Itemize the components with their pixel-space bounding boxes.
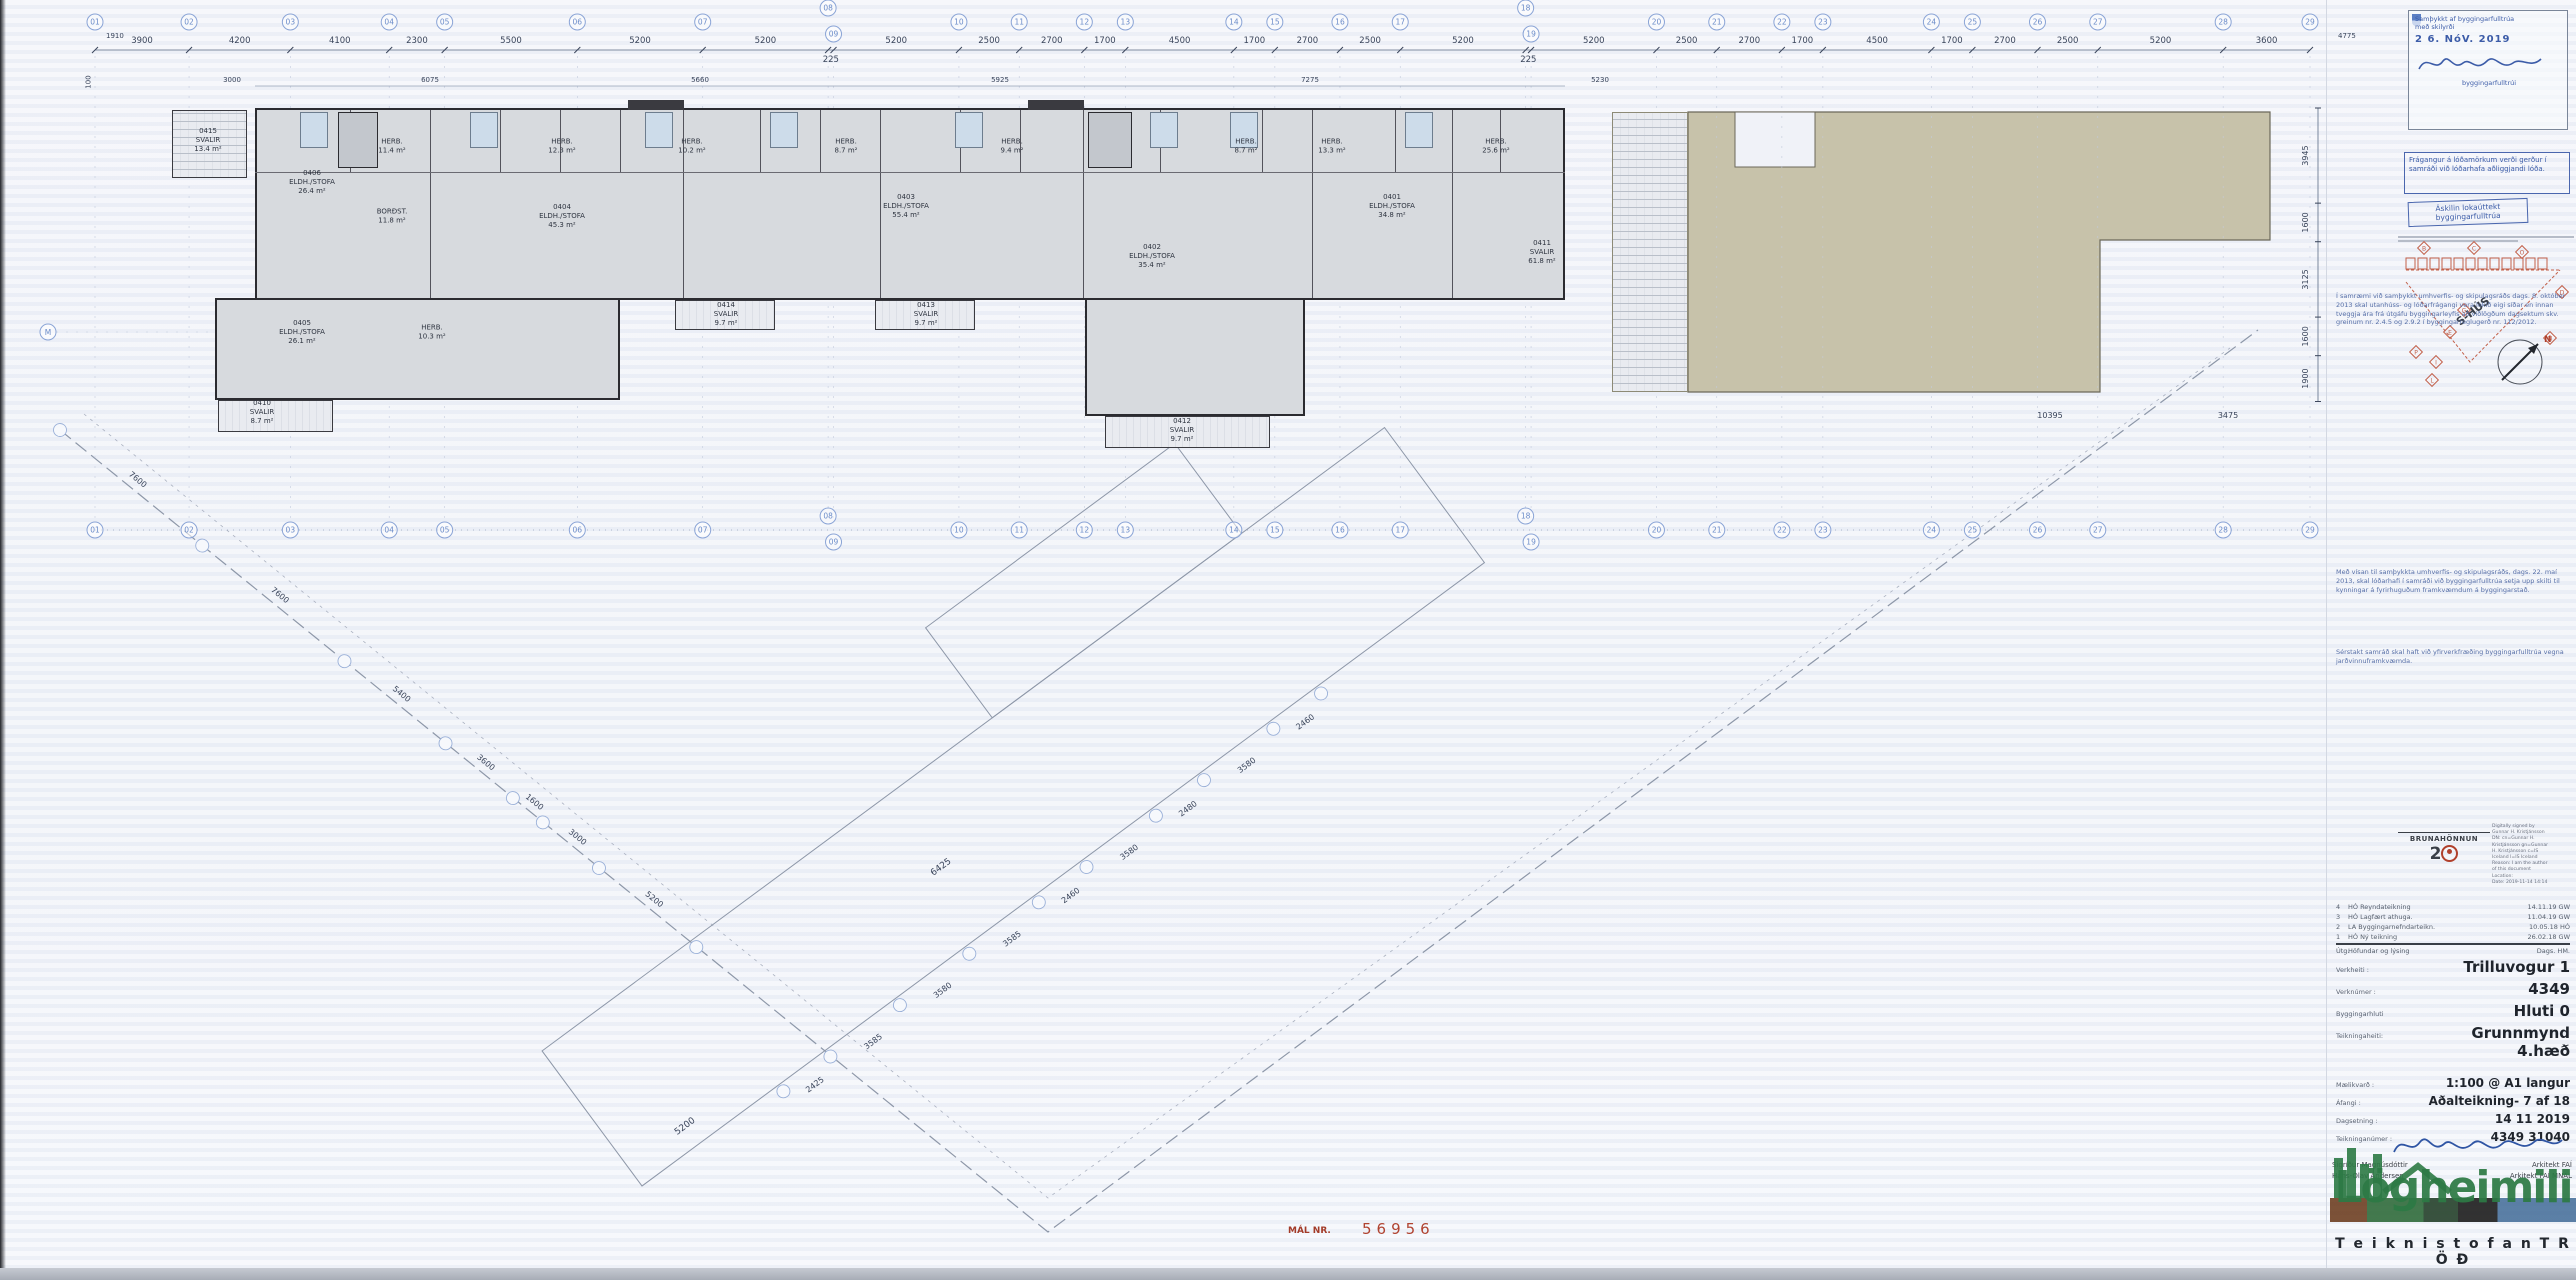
grid-bubble-label: 02	[184, 526, 194, 535]
dim-label: 5200	[644, 890, 665, 910]
target-icon	[2441, 845, 2458, 862]
revision-footer: Útg.Höfundar og lýsingDags. HM.	[2336, 943, 2570, 956]
dim-label: 3000	[223, 76, 241, 84]
room-label: 0403 ELDH./STOFA 55.4 m²	[883, 193, 929, 219]
grid-bubble-label: 28	[2218, 526, 2228, 535]
grid-bubble-label: 27	[2093, 18, 2103, 27]
dim-label: 1600	[2301, 212, 2310, 232]
dim-label: 2500	[978, 36, 1000, 46]
roof-notch	[1735, 112, 1815, 167]
dim-label: 5200	[885, 36, 907, 46]
dim-label: 2500	[1359, 36, 1381, 46]
room-label: HERB. 13.3 m²	[1318, 137, 1345, 155]
grid-bubble-label: 16	[1335, 18, 1345, 27]
room-label: HERB. 10.2 m²	[678, 137, 705, 155]
titleblock-row: Mælikvarð :1:100 @ A1 langur	[2336, 1076, 2570, 1090]
revision-row: 3HÓ Lagfært athuga.11.04.19 GW	[2336, 912, 2570, 922]
dim-label: M	[45, 328, 51, 337]
permit-note: Sérstakt samráð skal haft við yfirverkfr…	[2336, 648, 2568, 666]
dim-label: 3945	[2301, 145, 2310, 165]
dim-label: 2300	[406, 36, 428, 46]
dim-label: 225	[823, 55, 839, 65]
dim-label: 5925	[991, 76, 1009, 84]
grid-bubble-label: 01	[90, 18, 100, 27]
dim-label: 1900	[2301, 368, 2310, 388]
bathroom-fixture	[645, 112, 673, 148]
dim-label: 2460	[1294, 712, 1316, 731]
bathroom-fixture	[1150, 112, 1178, 148]
room-label: HERB. 12.3 m²	[548, 137, 575, 155]
dim-label: 3475	[2218, 411, 2238, 420]
grid-bubble-label: 29	[2305, 18, 2315, 27]
keyplan-grid-letter: I	[2435, 359, 2437, 366]
apartment-partition	[1083, 110, 1084, 298]
grid-bubble-label: 03	[286, 526, 296, 535]
grid-bubble-label: 12	[1080, 18, 1090, 27]
grid-bubble-label: 09	[829, 538, 839, 547]
dim-label: 3600	[475, 753, 496, 773]
bathroom-fixture	[470, 112, 498, 148]
grid-bubble-label: 08	[823, 4, 833, 13]
grid-bubble-label: 07	[698, 526, 708, 535]
revision-row: 4HÓ Reyndateikning14.11.19 GW	[2336, 902, 2570, 912]
site-setback	[84, 348, 2230, 1198]
dim-label: 5230	[1591, 76, 1609, 84]
grid-bubble-label: 04	[384, 526, 394, 535]
room-partition	[820, 110, 821, 172]
entry-porch	[628, 100, 684, 110]
page-edge	[0, 1268, 2576, 1280]
dim-label: 1700	[1792, 36, 1814, 46]
dim-label: 2425	[804, 1075, 826, 1094]
grid-bubble-label: 22	[1777, 526, 1787, 535]
revision-row: 1HÓ Ný teikning26.02.18 GW	[2336, 932, 2570, 942]
dim-label: 2700	[1041, 36, 1063, 46]
roof-walkway	[1612, 112, 1688, 392]
grid-bubble-label: 08	[823, 512, 833, 521]
grid-bubble-label: 28	[2218, 18, 2228, 27]
stair-core	[338, 112, 378, 168]
grid-bubble-label: 14	[1229, 18, 1239, 27]
titleblock-row: Áfangi :Aðalteikning- 7 af 18	[2336, 1094, 2570, 1108]
dim-label: 5200	[1583, 36, 1605, 46]
room-label: 0414 SVALIR 9.7 m²	[714, 301, 738, 327]
grid-bubble-label: 07	[698, 18, 708, 27]
dim-label: 4200	[229, 36, 251, 46]
grid-bubble-label: 26	[2033, 18, 2043, 27]
balcony-0410	[218, 400, 333, 432]
titleblock-row: Dagsetning :14 11 2019	[2336, 1112, 2570, 1126]
fire-design-logo: BRUNAHÖNNUN 2	[2398, 832, 2490, 864]
grid-bubble-label: 13	[1121, 526, 1131, 535]
site-boundary	[60, 330, 2258, 1232]
grid-bubble-label: 26	[2033, 526, 2043, 535]
dim-label: 7275	[1301, 76, 1319, 84]
bathroom-fixture	[770, 112, 798, 148]
grid-bubble-label: 01	[90, 526, 100, 535]
grid-bubble-label: 06	[573, 526, 583, 535]
room-partition	[760, 110, 761, 172]
permit-note: Með vísan til samþykkta umhverfis- og sk…	[2336, 568, 2568, 594]
grid-bubble-label: 12	[1080, 526, 1090, 535]
case-number-value: 56956	[1362, 1220, 1435, 1238]
dim-label: 5200	[2150, 36, 2172, 46]
apartment-partition	[1312, 110, 1313, 298]
apartment-partition	[430, 110, 431, 298]
apartment-partition	[1452, 110, 1453, 298]
room-label: 0401 ELDH./STOFA 34.8 m²	[1369, 193, 1415, 219]
room-partition	[1395, 110, 1396, 172]
dim-label: 6425	[929, 857, 953, 879]
permit-note: Í samræmi við samþykkt umhverfis- og ski…	[2336, 292, 2568, 327]
titleblock-row: Verknúmer :4349	[2336, 980, 2570, 998]
condition-note-box: Frágangur á lóðamörkum verði gerður í sa…	[2404, 152, 2570, 194]
grid-bubble-label: 05	[440, 526, 450, 535]
keyplan-grid-letter: L	[2430, 377, 2434, 384]
dim-label: 3580	[932, 981, 954, 1000]
building-mid-lower-wing	[1085, 298, 1305, 416]
dim-label: 1700	[1941, 36, 1963, 46]
dim-left-top: 1910	[106, 32, 124, 40]
approval-stamp: Samþykkt af byggingarfulltrúa með skilyr…	[2408, 10, 2568, 130]
grid-bubble-label: 19	[1526, 30, 1536, 39]
grid-bubble-label: 13	[1121, 18, 1131, 27]
titleblock-row: Verkheiti :Trilluvogur 1	[2336, 958, 2570, 976]
bathroom-fixture	[1405, 112, 1433, 148]
grid-bubble-label: 09	[829, 30, 839, 39]
room-label: 0402 ELDH./STOFA 35.4 m²	[1129, 243, 1175, 269]
grid-bubble-label: 15	[1270, 526, 1280, 535]
fine-print-line	[2398, 236, 2574, 238]
room-label: HERB. 8.7 m²	[1235, 137, 1258, 155]
grid-bubble-label: 23	[1818, 526, 1828, 535]
room-label: HERB. 9.4 m²	[1001, 137, 1024, 155]
grid-bubble-label: 10	[954, 526, 964, 535]
apartment-partition	[880, 110, 881, 298]
page-edge	[0, 0, 6, 1280]
dim-label: 5200	[1452, 36, 1474, 46]
panel-divider	[2326, 0, 2327, 1280]
dim-label: 3585	[1001, 929, 1023, 948]
grid-bubble-label: 17	[1395, 526, 1405, 535]
drawing-sheet: 2425358535803585246035802480358024606425…	[0, 0, 2576, 1280]
stamp-signature-icon	[2415, 47, 2545, 77]
grid-bubble-label: 14	[1229, 526, 1239, 535]
case-number-label: MÁL NR.	[1288, 1226, 1331, 1236]
room-label: BORÐST. 11.8 m²	[377, 207, 408, 225]
room-partition	[1262, 110, 1263, 172]
fire-design-logo-number: 2	[2430, 844, 2442, 864]
grid-bubble-label: 27	[2093, 526, 2103, 535]
dim-label: 2480	[1177, 799, 1199, 818]
inspection-stamp: Áskilin lokaúttekt byggingarfulltrúa	[2408, 198, 2529, 227]
grid-bubble-label: 19	[1526, 538, 1536, 547]
dim-label: 3000	[567, 827, 588, 847]
room-label: HERB. 11.4 m²	[378, 137, 405, 155]
dim-label: 3580	[1118, 843, 1140, 862]
grid-bubble-label: 11	[1014, 526, 1024, 535]
room-label: 0410 SVALIR 8.7 m²	[250, 399, 274, 425]
dim-label: 2700	[1297, 36, 1319, 46]
keyplan-grid-letter: P	[2414, 349, 2418, 356]
grid-bubble-label: 20	[1652, 18, 1662, 27]
grid-bubble-label: 04	[384, 18, 394, 27]
dim-label: 2700	[1994, 36, 2016, 46]
keyplan-grid-letter: E	[2448, 329, 2452, 336]
dim-label: 3900	[131, 36, 153, 46]
keyplan-grid-letter: O	[2520, 249, 2525, 256]
dim-right-top: 4775	[2338, 32, 2356, 40]
dim-label: 1600	[2301, 326, 2310, 346]
grid-bubble-label: 18	[1521, 4, 1531, 13]
grid-bubble-label: 22	[1777, 18, 1787, 27]
room-partition	[500, 110, 501, 172]
grid-bubble-label: 15	[1270, 18, 1280, 27]
room-label: 0412 SVALIR 9.7 m²	[1170, 417, 1194, 443]
grid-bubble-label: 03	[286, 18, 296, 27]
grid-bubble-label: 17	[1395, 18, 1405, 27]
stamp-line2: með skilyrði	[2415, 23, 2563, 31]
dim-label: 5200	[673, 1116, 698, 1138]
dim-label: 5500	[500, 36, 522, 46]
bathroom-fixture	[300, 112, 328, 148]
room-label: HERB. 10.3 m²	[418, 323, 445, 341]
dim-label: 10395	[2037, 411, 2062, 420]
north-arrow-icon: N	[2498, 335, 2552, 384]
grid-bubble-label: 11	[1014, 18, 1024, 27]
grid-bubble-label: 16	[1335, 526, 1345, 535]
dim-label: 6075	[421, 76, 439, 84]
dim-label: 225	[1520, 55, 1536, 65]
dim-label: 5200	[629, 36, 651, 46]
grid-bubble-label: 06	[573, 18, 583, 27]
dim-label: 4100	[329, 36, 351, 46]
grid-bubble-label: 05	[440, 18, 450, 27]
dim-label: 3125	[2301, 269, 2310, 289]
dim-label: 2500	[2057, 36, 2079, 46]
stamp-date: 2 6. NóV. 2019	[2415, 34, 2563, 47]
room-label: 0411 SVALIR 61.8 m²	[1528, 239, 1555, 265]
dim-left-side: 100	[85, 75, 93, 88]
room-label: 0405 ELDH./STOFA 26.1 m²	[279, 319, 325, 345]
dim-label: 2460	[1060, 886, 1082, 905]
grid-bubble-label: 24	[1927, 526, 1937, 535]
room-label: HERB. 8.7 m²	[835, 137, 858, 155]
svg-text:N: N	[2544, 335, 2552, 345]
grid-bubble-label: 02	[184, 18, 194, 27]
room-label: 0406 ELDH./STOFA 26.4 m²	[289, 169, 335, 195]
digital-signature-text: Digitally signed byGunnar H. Kristjánsso…	[2492, 824, 2572, 886]
room-label: 0413 SVALIR 9.7 m²	[914, 301, 938, 327]
grid-bubble-label: 25	[1968, 526, 1978, 535]
grid-bubble-label: 21	[1712, 526, 1722, 535]
dim-label: 3600	[2256, 36, 2278, 46]
keyplan-grid-letter: B	[2422, 245, 2426, 252]
dim-label: 1700	[1244, 36, 1266, 46]
dim-label: 1700	[1094, 36, 1116, 46]
grid-bubble-label: 21	[1712, 18, 1722, 27]
title-block: Verkheiti :Trilluvogur 1Verknúmer :4349B…	[2336, 958, 2570, 1148]
dim-label: 3585	[862, 1032, 884, 1051]
firm-logo-word: Lögheimili	[2330, 1162, 2576, 1213]
dim-label: 4500	[1866, 36, 1888, 46]
dim-label: 3580	[1236, 756, 1258, 775]
garage-outline: 2425358535803585246035802480358024606425…	[475, 338, 1499, 1207]
room-partition	[620, 110, 621, 172]
grid-bubble-label: 20	[1652, 526, 1662, 535]
dim-label: 2500	[1676, 36, 1698, 46]
dim-label: 5200	[755, 36, 777, 46]
room-label: HERB. 25.6 m²	[1482, 137, 1509, 155]
revision-row: 2LA Byggingarnefndarteikn.10.05.18 HÓ	[2336, 922, 2570, 932]
firm-logo-subtitle: T e i k n i s t o f a n T R Ö Ð	[2330, 1236, 2576, 1268]
bathroom-fixture	[955, 112, 983, 148]
dim-label: 4500	[1169, 36, 1191, 46]
building-left-lower-wing	[215, 298, 620, 400]
titleblock-row: Teikningaheiti:Grunnmynd 4.hæð	[2336, 1024, 2570, 1060]
titleblock-row: ByggingarhlutiHluti 0	[2336, 1002, 2570, 1020]
grid-bubble-label: 29	[2305, 526, 2315, 535]
grid-bubble-label: 23	[1818, 18, 1828, 27]
dim-label: 5660	[691, 76, 709, 84]
keyplan-grid-letter: C	[2472, 245, 2476, 252]
fire-design-logo-name: BRUNAHÖNNUN	[2398, 832, 2490, 843]
room-label: 0415 SVALIR 13.4 m²	[194, 127, 221, 153]
grid-bubble-label: 25	[1968, 18, 1978, 27]
revision-table: 4HÓ Reyndateikning14.11.19 GW3HÓ Lagfært…	[2336, 902, 2570, 956]
dim-label: 2700	[1738, 36, 1760, 46]
room-label: 0404 ELDH./STOFA 45.3 m²	[539, 203, 585, 229]
stair-core	[1088, 112, 1132, 168]
grid-bubble-label: 10	[954, 18, 964, 27]
entry-porch	[1028, 100, 1084, 110]
stamp-line1: Samþykkt af byggingarfulltrúa	[2415, 15, 2563, 23]
corridor-line	[255, 172, 1565, 173]
stamp-signer-title: byggingarfulltrúi	[2415, 79, 2563, 87]
grid-bubble-label: 18	[1521, 512, 1531, 521]
grid-bubble-label: 24	[1927, 18, 1937, 27]
